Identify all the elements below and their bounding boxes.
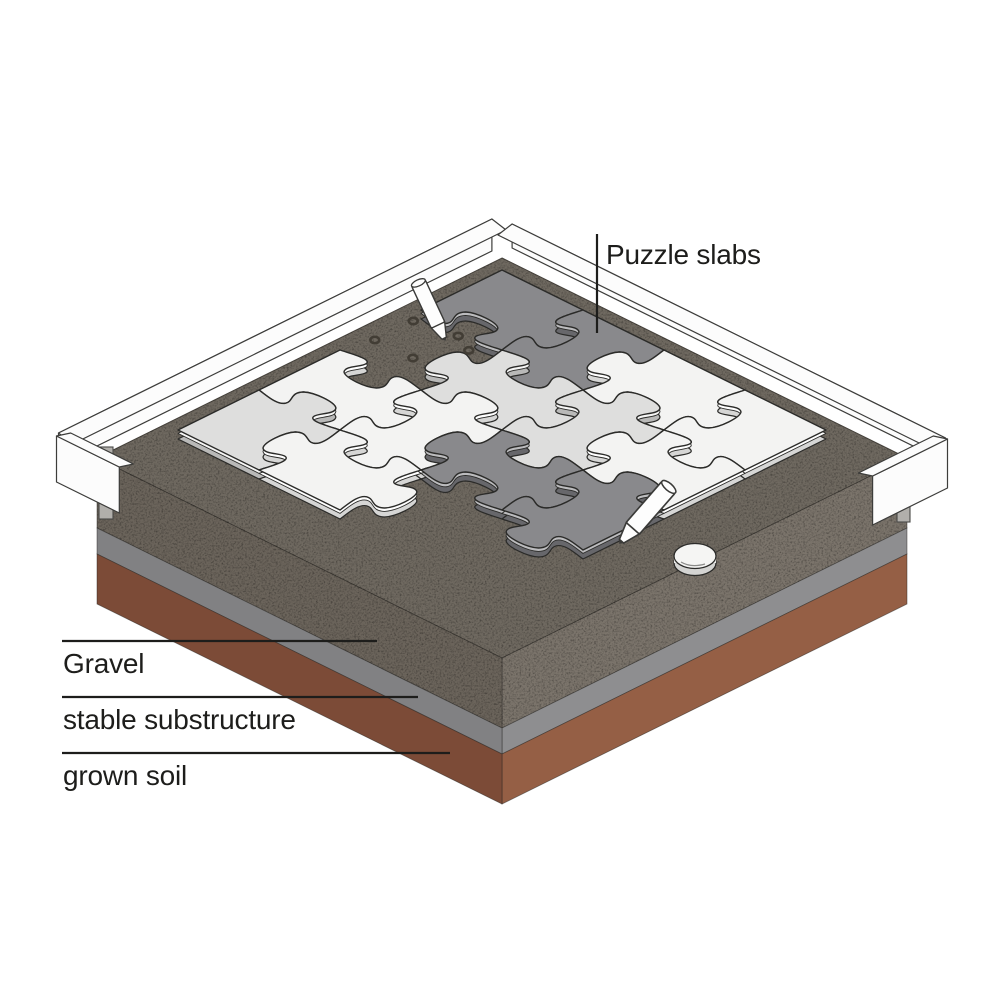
pavement-diagram-canvas xyxy=(0,0,1000,1000)
label-puzzle-slabs: Puzzle slabs xyxy=(606,241,761,269)
cut-knob-piece xyxy=(674,544,716,576)
label-stable-substructure: stable substructure xyxy=(63,706,296,734)
diagram: Puzzle slabs Gravel stable substructure … xyxy=(0,0,1000,1000)
label-gravel: Gravel xyxy=(63,650,144,678)
label-grown-soil: grown soil xyxy=(63,762,187,790)
